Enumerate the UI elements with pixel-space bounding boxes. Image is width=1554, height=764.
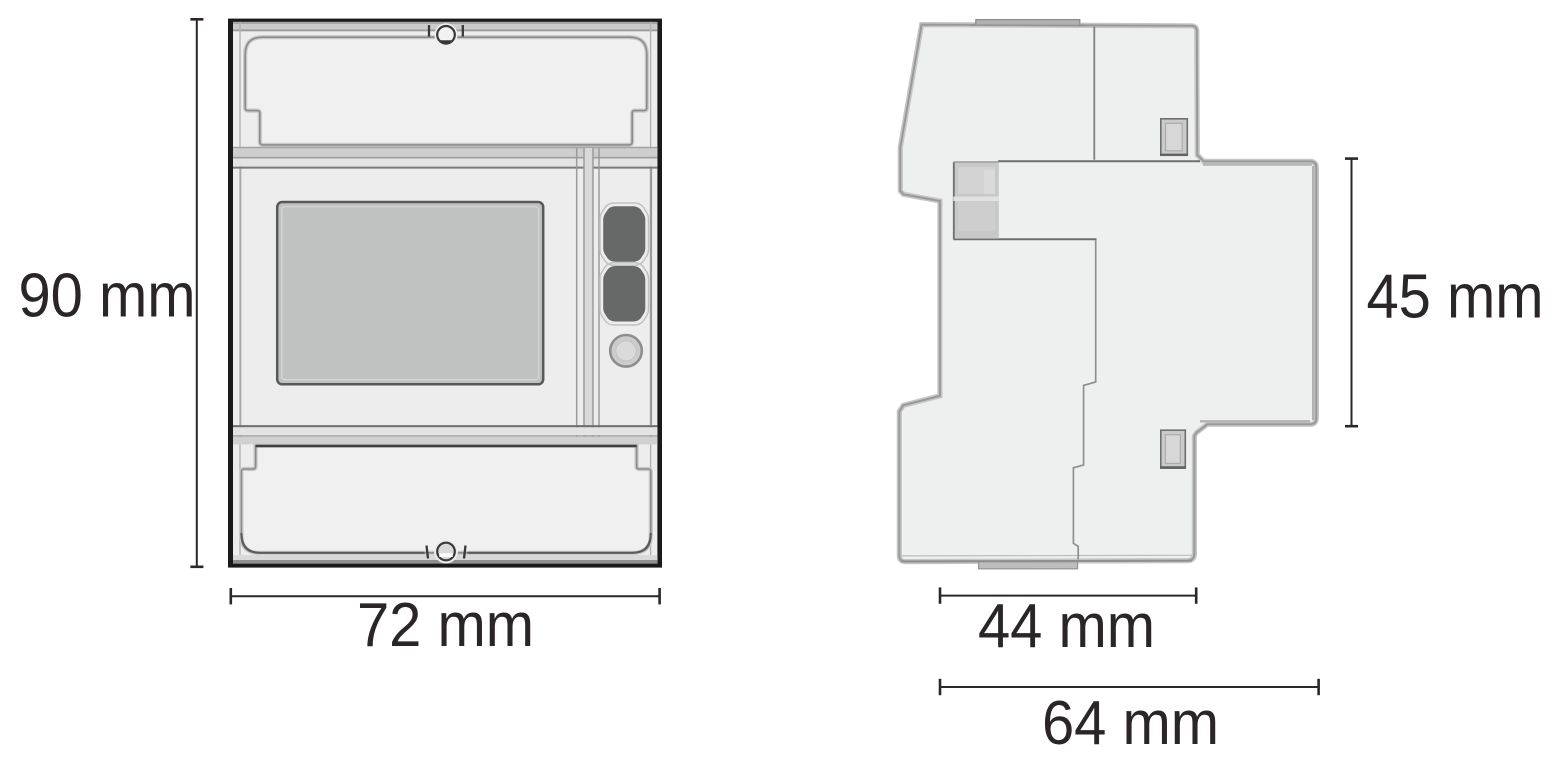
- svg-text:45 mm: 45 mm: [1366, 262, 1543, 331]
- svg-text:90 mm: 90 mm: [18, 261, 195, 330]
- svg-text:44 mm: 44 mm: [978, 591, 1155, 660]
- svg-text:64 mm: 64 mm: [1042, 688, 1219, 757]
- svg-text:72 mm: 72 mm: [357, 590, 534, 659]
